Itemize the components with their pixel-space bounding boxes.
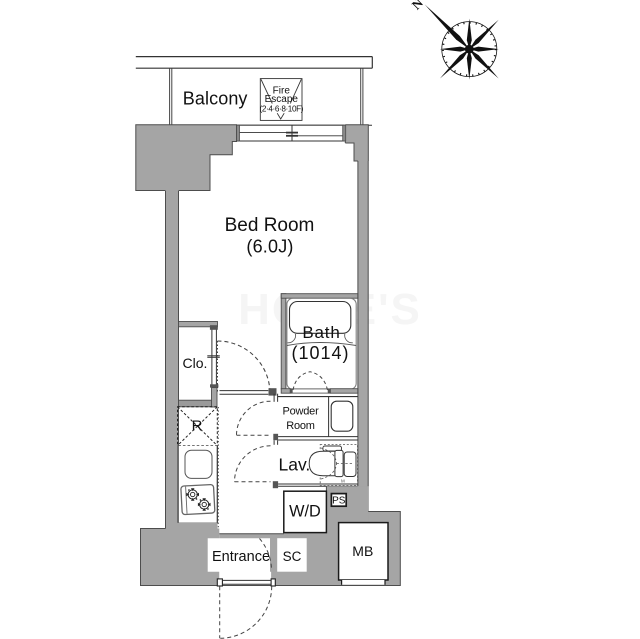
svg-text:M: M [341, 479, 345, 484]
svg-text:(1014): (1014) [291, 343, 349, 363]
svg-text:Escape: Escape [265, 94, 299, 105]
svg-text:Bath: Bath [302, 323, 340, 342]
svg-text:Bed Room: Bed Room [225, 215, 315, 236]
svg-text:Powder: Powder [282, 406, 319, 418]
svg-text:PS: PS [332, 496, 346, 507]
svg-text:Clo.: Clo. [183, 355, 208, 371]
svg-text:R: R [192, 418, 203, 435]
svg-text:Entrance: Entrance [212, 549, 270, 565]
svg-text:(2·4·6·8·10F): (2·4·6·8·10F) [260, 105, 304, 114]
svg-text:Balcony: Balcony [183, 89, 248, 109]
svg-text:(6.0J): (6.0J) [246, 237, 293, 257]
svg-text:MB: MB [352, 543, 373, 559]
svg-text:Room: Room [286, 420, 315, 432]
svg-text:Lav.: Lav. [279, 455, 311, 475]
svg-text:W/D: W/D [289, 503, 321, 521]
svg-text:SC: SC [283, 549, 302, 564]
